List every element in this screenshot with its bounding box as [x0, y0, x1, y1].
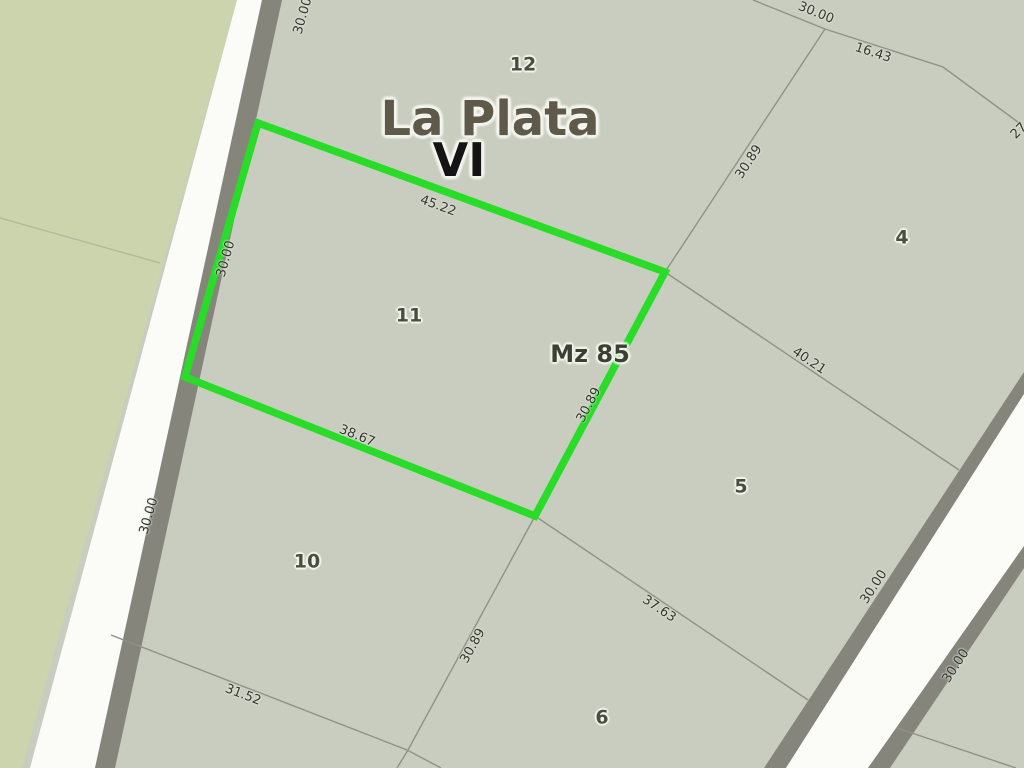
- cadastral-map: 12La PlataVI11Mz 854510645.2238.6730.893…: [0, 0, 1024, 768]
- map-geometry: [0, 0, 1024, 768]
